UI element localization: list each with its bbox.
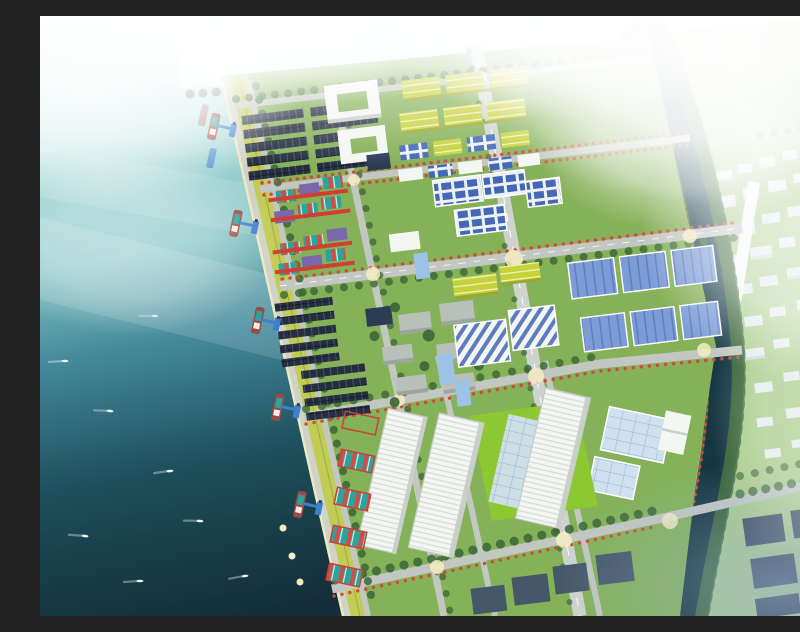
rendering-canvas (40, 16, 800, 616)
aerial-rendering: Bird's-eye architectural rendering: a ti… (40, 16, 800, 616)
